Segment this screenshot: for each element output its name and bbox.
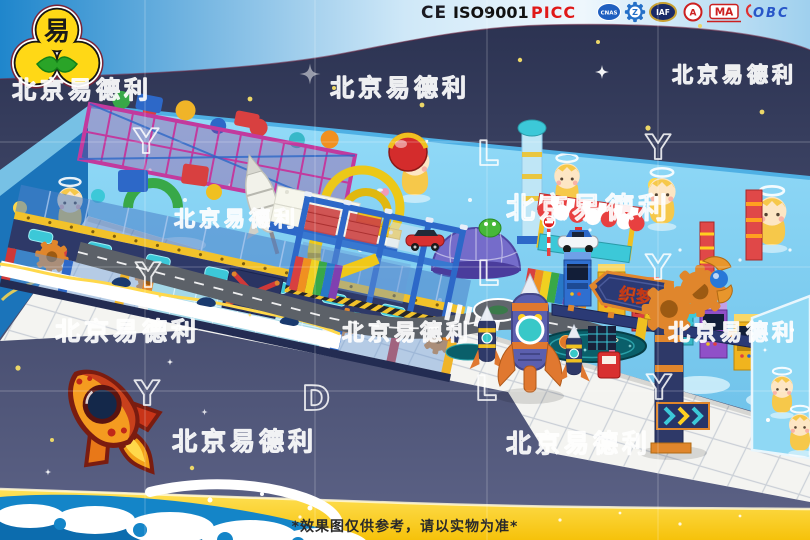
watermark-text: 北京易德利 [506, 191, 671, 225]
badge-cma: MA [707, 5, 741, 22]
badge-seal-a-label: A [690, 9, 697, 19]
picc-text: PICC [531, 3, 576, 22]
red-box-prop [598, 352, 620, 378]
red-ball [389, 133, 427, 171]
claw-ball [710, 270, 728, 288]
poster-canvas: 织梦 [0, 0, 810, 540]
watermark-text: 北京易德利 [172, 427, 317, 456]
playground-poster: 织梦 [0, 0, 810, 540]
badge-seal-a: A [685, 4, 702, 21]
logo-character: 易 [44, 17, 70, 47]
cube-shelf [588, 326, 616, 350]
watermark-letter: L [477, 254, 499, 294]
iso-text: ISO9001 [453, 3, 529, 22]
ce-mark-text: CE [421, 3, 447, 23]
badge-gear-z: Z [625, 2, 645, 22]
badge-gear-z-label: Z [632, 8, 638, 17]
watermark-text: 北京易德利 [174, 207, 299, 231]
watermark-text: 北京易德利 [506, 429, 651, 458]
arcade-machine [564, 252, 591, 306]
watermark-letter: Y [645, 248, 671, 288]
watermark-letter: Y [134, 374, 160, 414]
watermark-letter: Y [646, 368, 672, 408]
badge-iaf: IAF [650, 3, 676, 21]
watermark-letter: D [302, 379, 330, 419]
watermark-letter: Y [645, 128, 671, 168]
watermark-text: 北京易德利 [12, 76, 152, 104]
badge-cnas-label: CNAS [601, 11, 618, 17]
watermark-letter: Y [133, 122, 159, 162]
watermark-letter: L [475, 369, 497, 409]
badge-cnas: CNAS [598, 4, 621, 21]
watermark-text: 北京易德利 [342, 320, 472, 346]
watermark-text: 北京易德利 [672, 63, 797, 87]
watermark-text: 北京易德利 [55, 317, 200, 346]
watermark-letter: L [477, 134, 499, 174]
green-creature [479, 219, 501, 237]
watermark-text: 北京易德利 [330, 74, 470, 102]
watermark-text: 北京易德利 [668, 320, 798, 346]
badge-cma-label: MA [715, 7, 734, 19]
watermark-letter: Y [135, 256, 161, 296]
badge-obc: OBC [747, 5, 790, 21]
badge-obc-label: OBC [753, 6, 790, 21]
disclaimer-text: *效果图仅供参考，请以实物为准* [292, 518, 519, 535]
